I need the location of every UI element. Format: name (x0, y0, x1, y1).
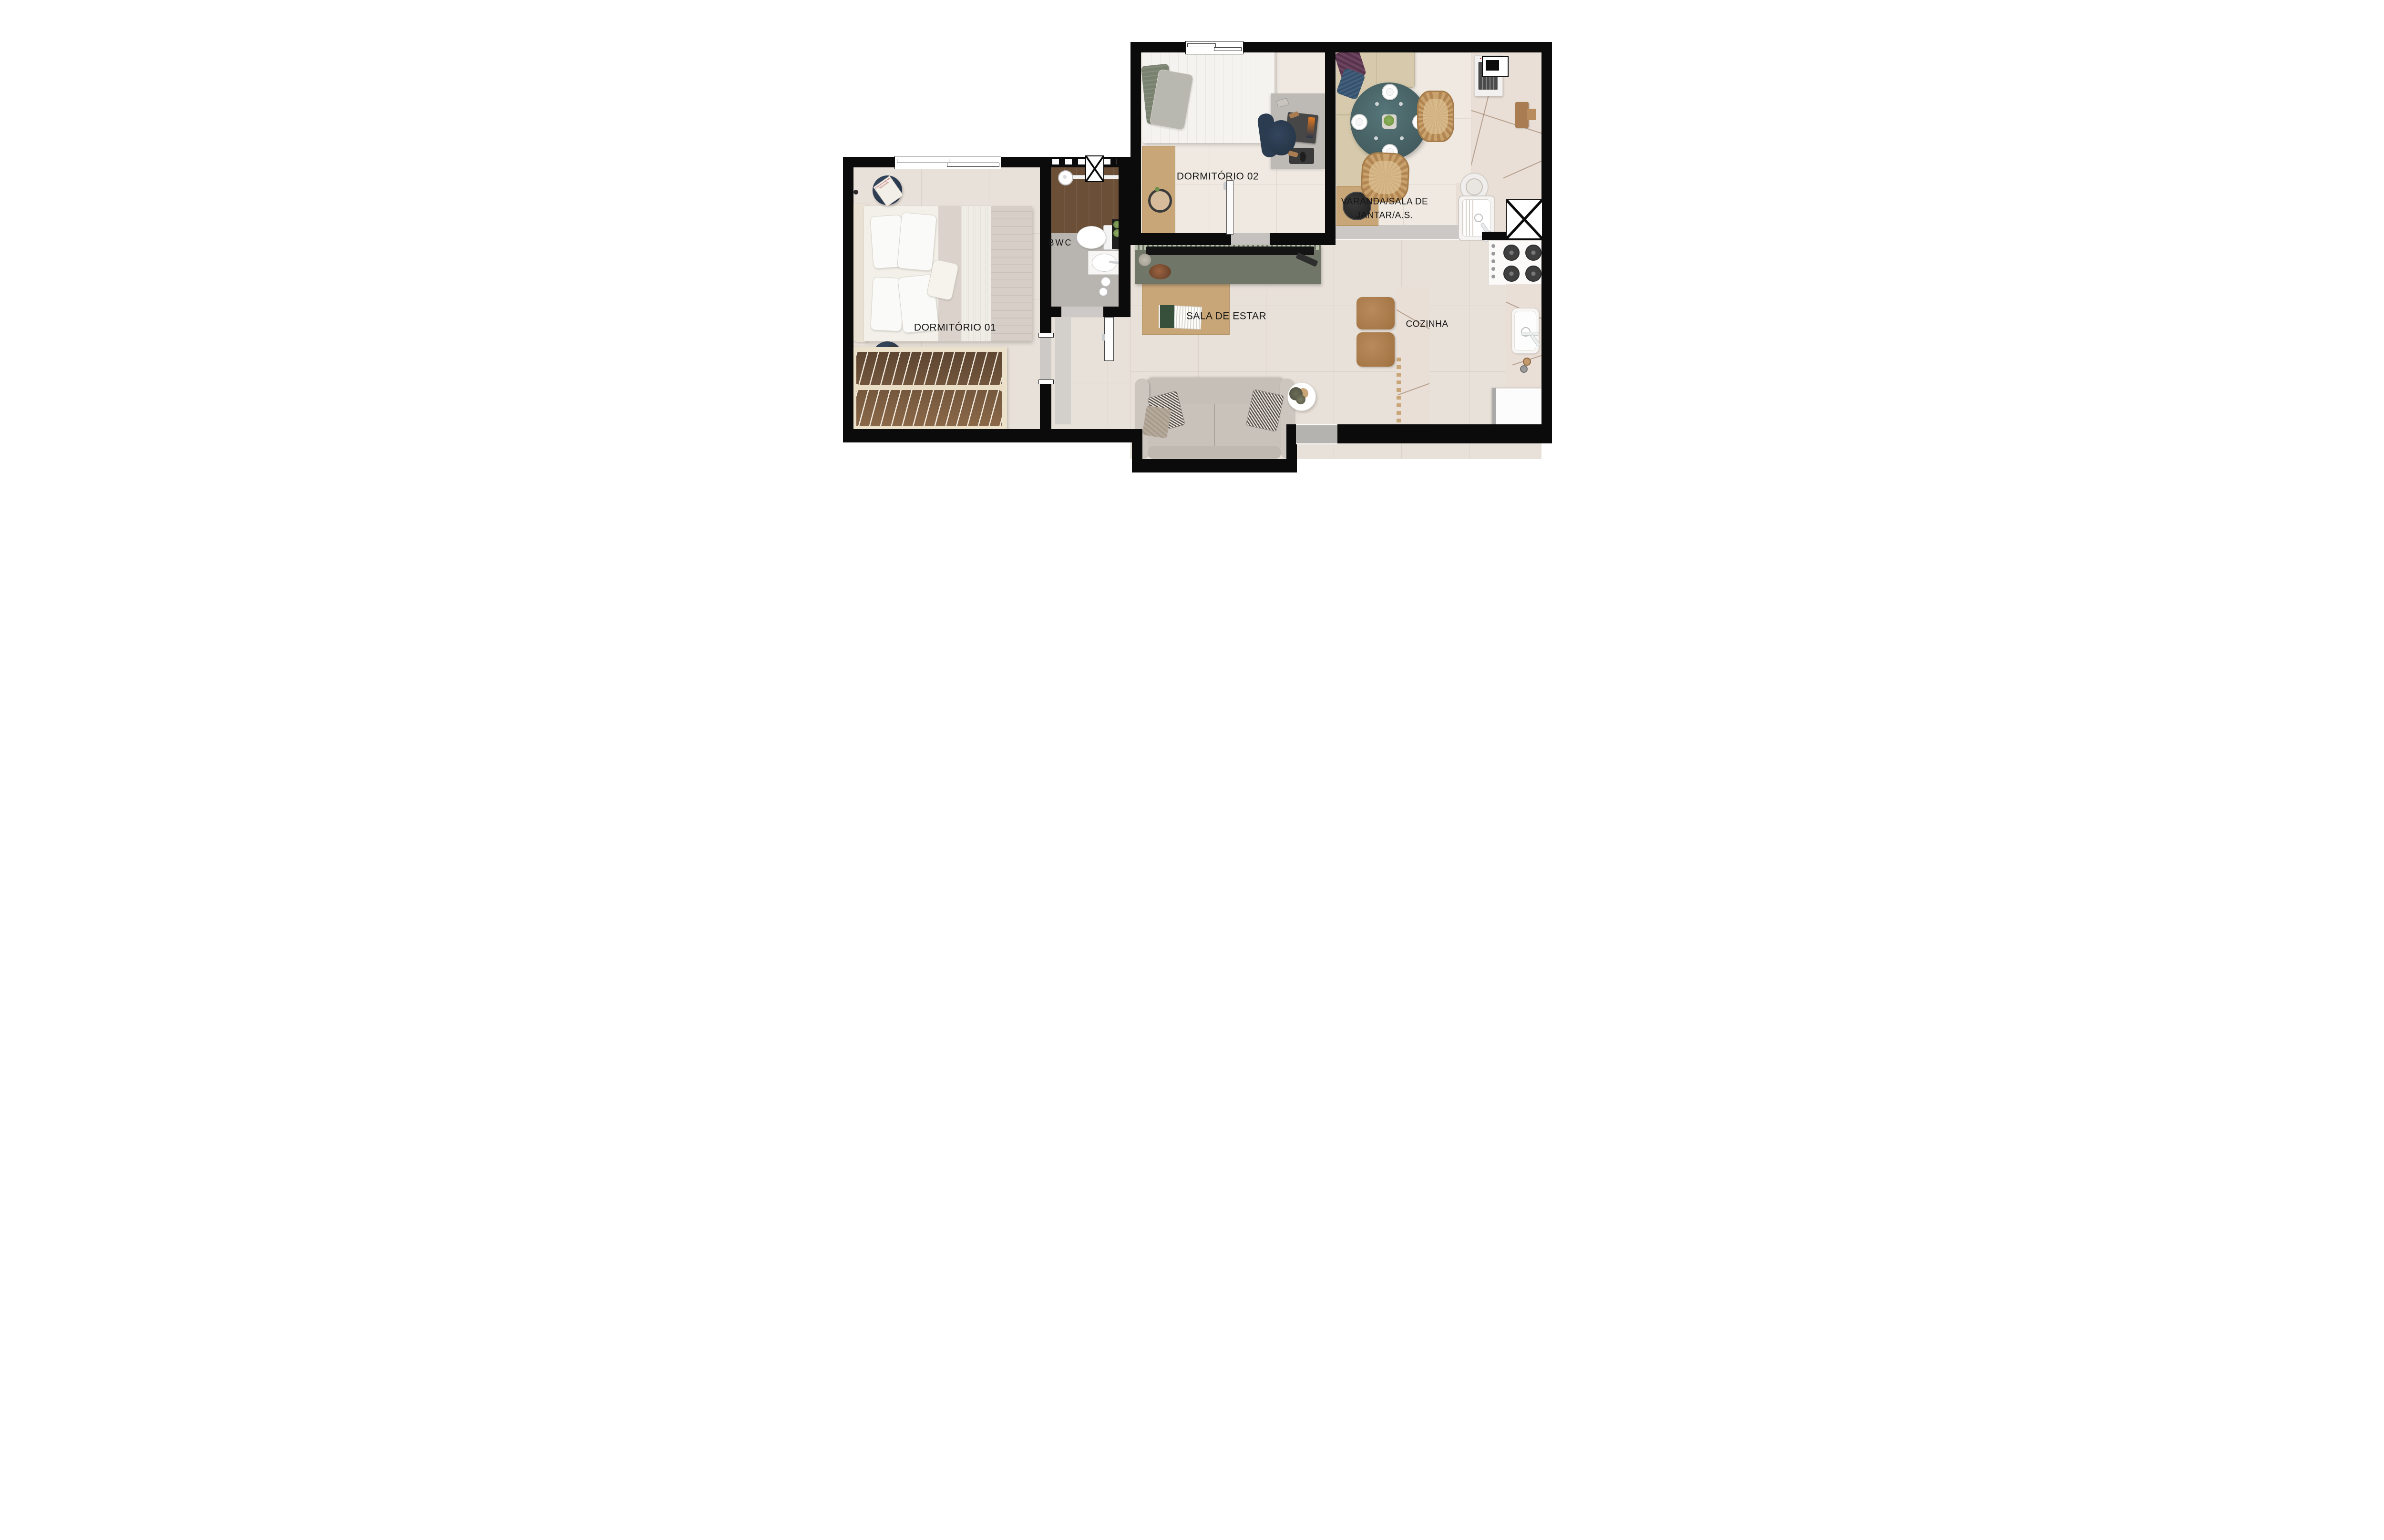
wall-segment (1337, 424, 1552, 443)
floor-drain (1100, 277, 1111, 287)
wall-segment (1132, 459, 1297, 472)
window-pane (1214, 47, 1242, 51)
stove-knob (1491, 259, 1495, 263)
door-leaf-dormitorio2 (1226, 180, 1233, 235)
counter-jar (1520, 365, 1528, 373)
burner (1525, 245, 1541, 261)
wall-segment (843, 157, 853, 442)
window-pane (947, 163, 999, 167)
room-label-dormitorio1: DORMITÓRIO 01 (914, 320, 996, 336)
pendant-lamp-plant (1155, 187, 1160, 192)
sofa-seat-seam (1214, 404, 1215, 450)
dining-chair-wood (1356, 332, 1395, 367)
bed-quilt-folds (991, 206, 1032, 341)
floor-plan: STEPHEN KING MR. MERCEDES (818, 0, 1566, 483)
threshold-dormitorio1-door (1040, 336, 1051, 381)
decor-bowl (1149, 264, 1171, 279)
hanger-rail (856, 385, 1002, 390)
faucet (1521, 332, 1539, 336)
cushion-taupe (1142, 405, 1171, 438)
wall-segment (1130, 42, 1141, 245)
wall-segment (1286, 424, 1297, 472)
room-label-dormitorio2: DORMITÓRIO 02 (1177, 169, 1259, 185)
room-label-sala: SALA DE ESTAR (1186, 309, 1266, 325)
plant (1296, 395, 1305, 404)
room-label-cozinha: COZINHA (1406, 317, 1449, 331)
duct-shaft (1085, 155, 1104, 182)
door-jamb (1038, 380, 1054, 384)
door-leaf-bwc (1104, 317, 1114, 361)
threshold-dormitorio2-door (1231, 233, 1270, 245)
vent-grille (1052, 159, 1117, 164)
dried-flowers (1139, 254, 1151, 266)
glass (1374, 136, 1378, 140)
washing-machine-ring (1466, 178, 1483, 195)
entry-door (1296, 424, 1337, 444)
rail-cap (854, 384, 859, 391)
glass (1400, 136, 1404, 140)
stove-knob (1491, 244, 1495, 248)
island-peg-edge (1397, 355, 1401, 430)
threshold-bwc-door (1061, 307, 1103, 317)
dining-chair-wood (1356, 297, 1395, 329)
table-plant (1384, 115, 1394, 126)
wall-segment (1040, 381, 1051, 429)
heater-indicator (1480, 58, 1481, 59)
wall-segment (1119, 167, 1130, 317)
dinner-plate (1351, 114, 1367, 130)
window-pane (1187, 43, 1216, 47)
burner (1503, 266, 1520, 282)
shower-head-center (1063, 175, 1067, 179)
wall-segment (843, 429, 1132, 442)
wall-segment (1051, 307, 1061, 317)
bench-seat (1377, 48, 1415, 88)
floor-drain (1099, 287, 1108, 297)
burner (1525, 266, 1541, 282)
pendant-lamp (1148, 189, 1172, 213)
burner (1503, 245, 1520, 261)
window-pane (897, 159, 949, 163)
wall-segment (1103, 307, 1130, 317)
hall-runner (1055, 317, 1071, 424)
dinner-plate (1382, 84, 1398, 100)
book-stack (1159, 305, 1174, 328)
mouse (1300, 152, 1306, 162)
glass (1375, 102, 1379, 106)
room-label-varanda: VARANDA/SALA DE JANTAR/A.S. (1341, 195, 1428, 223)
pillow (897, 212, 937, 271)
wall-sconce (853, 190, 858, 195)
sink-drain (1474, 214, 1483, 222)
toilet (1077, 226, 1106, 249)
counter-jar (1523, 358, 1531, 366)
stove-knob (1491, 252, 1495, 256)
rail-cap (999, 384, 1004, 391)
kitchen-island (1397, 287, 1429, 441)
clothespin-holder (1527, 109, 1536, 120)
duct-shaft (1506, 199, 1543, 239)
sofa-front-roll (1148, 446, 1281, 459)
rattan-chair (1417, 91, 1454, 142)
tv (1146, 246, 1314, 255)
stove-knob (1491, 275, 1495, 278)
door-jamb (1038, 333, 1054, 338)
glass (1399, 102, 1403, 106)
door-handle (1102, 334, 1105, 341)
structural-column-core (1486, 60, 1499, 71)
office-chair-seat (1266, 120, 1296, 155)
wall-segment (1130, 233, 1231, 245)
wall-segment (1325, 42, 1336, 245)
wall-segment (1040, 167, 1051, 336)
stove-knob (1491, 267, 1495, 271)
room-label-bwc: BWC (1048, 236, 1073, 250)
wall-segment (1541, 52, 1552, 443)
